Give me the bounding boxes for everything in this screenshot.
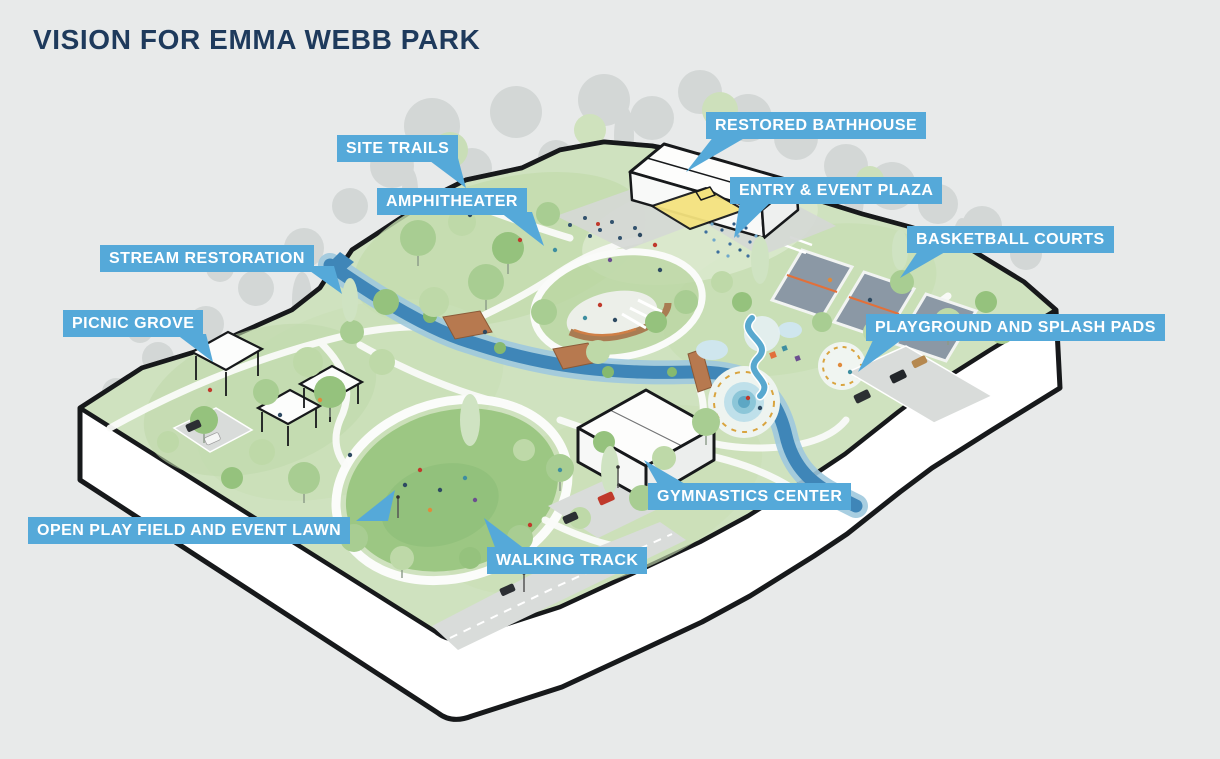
label-stream-restoration: STREAM RESTORATION <box>100 245 314 272</box>
park-map-illustration <box>0 0 1220 759</box>
label-amphitheater: AMPHITHEATER <box>377 188 527 215</box>
label-basketball-courts: BASKETBALL COURTS <box>907 226 1114 253</box>
park-vision-poster: VISION FOR EMMA WEBB PARK RESTORED BATHH… <box>0 0 1220 759</box>
label-picnic-grove: PICNIC GROVE <box>63 310 203 337</box>
label-open-play-field: OPEN PLAY FIELD AND EVENT LAWN <box>28 517 350 544</box>
label-gymnastics-center: GYMNASTICS CENTER <box>648 483 851 510</box>
label-entry-event-plaza: ENTRY & EVENT PLAZA <box>730 177 942 204</box>
label-site-trails: SITE TRAILS <box>337 135 458 162</box>
label-restored-bathhouse: RESTORED BATHHOUSE <box>706 112 926 139</box>
page-title: VISION FOR EMMA WEBB PARK <box>33 24 480 56</box>
label-playground-splash-pads: PLAYGROUND AND SPLASH PADS <box>866 314 1165 341</box>
label-walking-track: WALKING TRACK <box>487 547 647 574</box>
